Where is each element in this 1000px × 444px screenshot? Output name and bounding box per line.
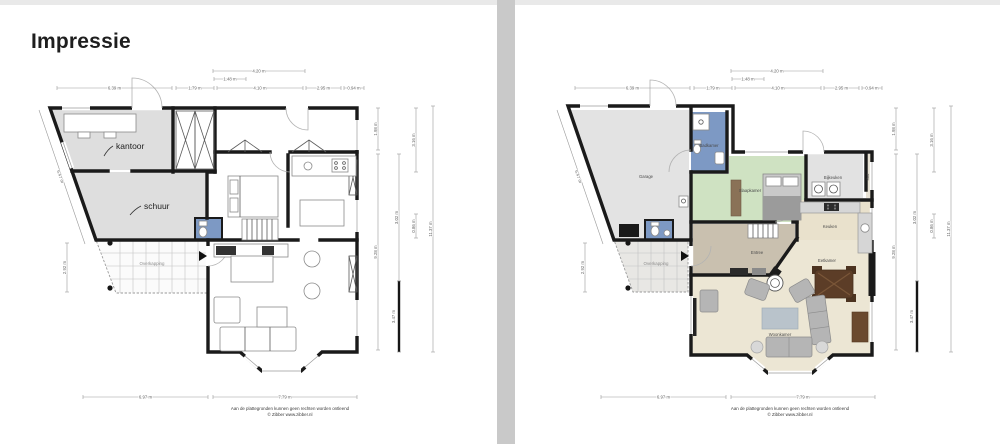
- bed: [228, 176, 278, 217]
- disclaimer-left: Aan de plattegronden kunnen geen rechten…: [231, 406, 350, 417]
- floorplans-canvas: kantoor schuur Overkapping: [0, 0, 1000, 444]
- dimension-label: 1.48 m: [223, 76, 237, 81]
- garage-door-arc: [650, 80, 676, 106]
- dimension-label: 6.39 m: [108, 85, 122, 90]
- dimension-label: 2.95 m: [835, 85, 849, 90]
- dimension-label: 7.79 m: [278, 394, 292, 399]
- wall-pier: [869, 252, 876, 296]
- floorplan-right-impression: Garage Badkamer Slaapkamer Bijkeuken Kas…: [568, 80, 876, 373]
- dimension-label: 6.47 m: [56, 169, 65, 183]
- dimension-label: 0.94 m: [347, 85, 361, 90]
- disclaimer-text: Aan de plattegronden kunnen geen rechten…: [731, 406, 850, 411]
- desk: [64, 114, 136, 132]
- room-label-entree: Entree: [751, 250, 764, 255]
- room-label-badkamer: Badkamer: [699, 143, 719, 148]
- dimension-label: 0.86 m: [411, 219, 416, 233]
- post-icon: [625, 285, 630, 290]
- garage-door-arc: [132, 78, 162, 108]
- dimension-label: 4.20 m: [252, 68, 266, 73]
- rug: [762, 308, 798, 329]
- post-icon: [107, 285, 112, 290]
- dimension-label: 1.48 m: [741, 76, 755, 81]
- dimension-label: 6.97 m: [139, 394, 153, 399]
- dimension-label: 3.16 m: [411, 133, 416, 147]
- room-label-keuken: Keuken: [823, 224, 838, 229]
- armchair: [700, 290, 718, 312]
- room-label-kantoor: kantoor: [116, 141, 145, 151]
- room-garage: [570, 110, 689, 238]
- sideboard: [852, 312, 868, 342]
- dimension-label: 3.47 m: [391, 310, 396, 324]
- disclaimer-text: Aan de plattegronden kunnen geen rechten…: [231, 406, 350, 411]
- washbasin: [679, 196, 688, 207]
- dimension-label: 11.37 m: [428, 221, 433, 237]
- dimension-label: 1.79 m: [706, 85, 720, 90]
- dimension-label: 11.37 m: [946, 221, 951, 237]
- bed: [763, 174, 801, 220]
- dimension-label: 1.79 m: [188, 85, 202, 90]
- room-label-kast: Kast: [866, 174, 870, 181]
- toilet-icon: [199, 221, 207, 237]
- backdoor-arc: [803, 131, 824, 152]
- dimension-label: 6.39 m: [626, 85, 640, 90]
- dimension-label: 4.20 m: [770, 68, 784, 73]
- stairs-icon: [748, 224, 778, 238]
- dimension-label: 2.92 m: [62, 261, 67, 275]
- dimension-label: 1.98 m: [373, 122, 378, 136]
- room-label-bijkeuken: Bijkeuken: [824, 175, 843, 180]
- copyright-text: © Zibber www.zibber.nl: [768, 412, 813, 417]
- tv: [693, 298, 697, 336]
- sofa-group: [214, 251, 320, 351]
- hall-cabinets: [730, 268, 766, 275]
- room-label-slaapkamer: Slaapkamer: [739, 188, 762, 193]
- room-label-overkapping: Overkapping: [644, 261, 669, 266]
- kitchen-counter: [292, 156, 356, 226]
- area-overkapping: [96, 240, 207, 293]
- room-label-woonkamer: Woonkamer: [769, 332, 792, 337]
- dimension-label: 3.02 m: [394, 211, 399, 225]
- dimension-label: 2.95 m: [317, 85, 331, 90]
- dimension-label: 2.92 m: [580, 261, 585, 275]
- dimension-label: 6.47 m: [574, 169, 583, 183]
- stairs-icon: [242, 219, 278, 240]
- floorplan-page: Impressie: [0, 0, 1000, 444]
- disclaimer-right: Aan de plattegronden kunnen geen rechten…: [731, 406, 850, 417]
- dimension-label: 9.28 m: [891, 245, 896, 259]
- room-label-overkapping: Overkapping: [140, 261, 165, 266]
- copyright-text: © Zibber www.zibber.nl: [268, 412, 313, 417]
- dimension-label: 9.28 m: [373, 245, 378, 259]
- room-label-garage: Garage: [639, 174, 654, 179]
- dimension-label: 0.86 m: [929, 219, 934, 233]
- dimension-label: 4.10 m: [771, 85, 785, 90]
- dimension-label: 0.94 m: [865, 85, 879, 90]
- dimension-label: 7.79 m: [796, 394, 810, 399]
- wardrobe: [731, 180, 741, 216]
- floorplan-left-drawing: kantoor schuur Overkapping: [50, 78, 357, 371]
- storage-block: [619, 224, 639, 237]
- dimension-label: 4.10 m: [253, 85, 267, 90]
- room-label-eetkamer: Eetkamer: [818, 258, 837, 263]
- sideboard: [214, 244, 288, 257]
- area-overkapping: [614, 240, 688, 292]
- dimension-label: 3.47 m: [909, 310, 914, 324]
- dimension-label: 6.97 m: [657, 394, 671, 399]
- dimension-label: 3.16 m: [929, 133, 934, 147]
- dimension-label: 3.02 m: [912, 211, 917, 225]
- shaft-icon: [176, 111, 214, 169]
- dimension-label: 1.98 m: [891, 122, 896, 136]
- room-label-schuur: schuur: [144, 201, 170, 211]
